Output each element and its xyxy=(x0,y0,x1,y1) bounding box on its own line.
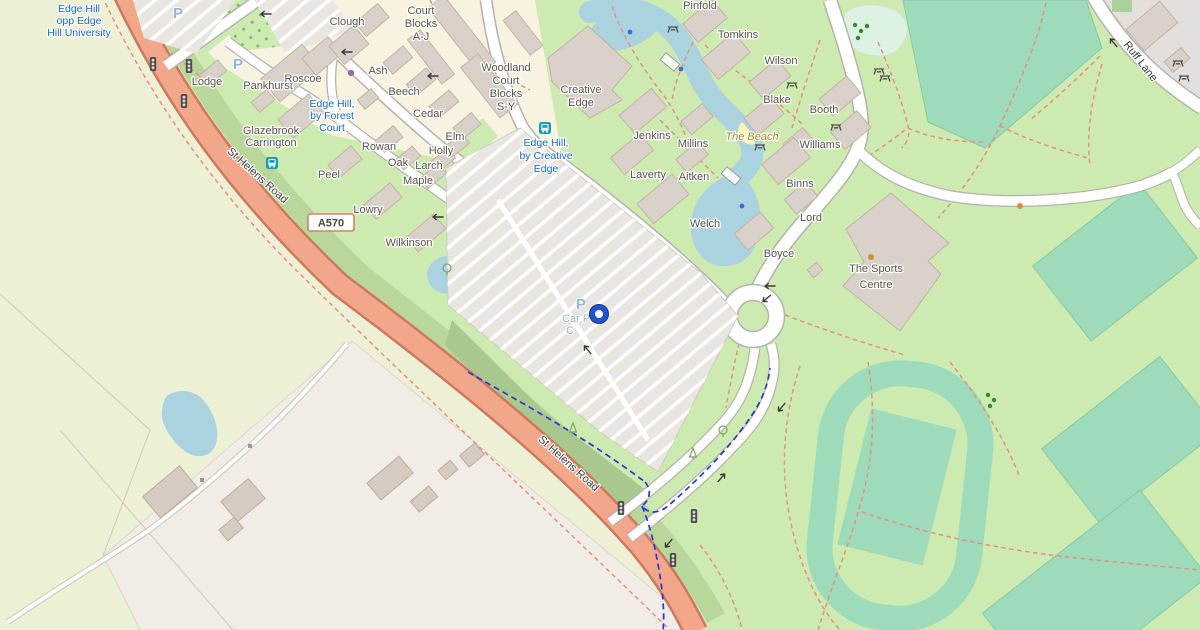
building-label-millins: Millins xyxy=(678,138,709,150)
building-label-wilson: Wilson xyxy=(764,55,797,67)
bus-stop-label-creative-edge: by Creative xyxy=(519,150,572,162)
traffic-light-icon xyxy=(691,509,697,523)
lane-node xyxy=(200,478,204,482)
shop-poi-icon xyxy=(348,70,354,76)
building-label-lowry: Lowry xyxy=(353,204,383,216)
bus-stop-label-forest-court: Edge Hill, xyxy=(310,98,355,110)
building-label-glazebrook: Carrington xyxy=(245,137,296,149)
building-label-ash: Ash xyxy=(369,65,388,77)
building-label-lord: Lord xyxy=(800,212,822,224)
building-label-woodland: S-Y xyxy=(497,101,516,113)
bus-stop-label-forest-court: Court xyxy=(319,122,345,134)
building-label-booth: Booth xyxy=(810,104,839,116)
building-label-peel: Peel xyxy=(318,169,340,181)
bus-stop-label-forest-court: by Forest xyxy=(310,110,354,122)
tree-dot-icon xyxy=(865,24,869,28)
building-label-wilkinson: Wilkinson xyxy=(385,237,432,249)
building-label-beech: Beech xyxy=(388,86,419,98)
parking-icon: P xyxy=(173,5,183,22)
parking-icon: P xyxy=(576,296,586,313)
building-label-holly: Holly xyxy=(429,145,454,157)
building-label-tomkins: Tomkins xyxy=(718,29,759,41)
traffic-light-icon xyxy=(670,553,676,567)
bus-stop-label-creative-edge: Edge Hill, xyxy=(524,137,569,149)
building-label-aitken: Aitken xyxy=(679,171,710,183)
traffic-light-icon xyxy=(181,94,187,108)
building-label-elm: Elm xyxy=(446,131,465,143)
car-park-letter: C xyxy=(566,325,574,337)
traffic-light-icon xyxy=(150,57,156,71)
building-label-pinfold: Pinfold xyxy=(683,0,717,12)
building-label-woodland: Court xyxy=(493,75,520,87)
building-label-cedar: Cedar xyxy=(413,108,443,120)
fountain-dot-icon xyxy=(679,67,684,72)
poi-dot-icon xyxy=(1017,203,1023,209)
building-label-maple: Maple xyxy=(403,175,433,187)
osm-map[interactable]: Edge Hill opp Edge Hill University Cloug… xyxy=(0,0,1200,630)
building-label-larch: Larch xyxy=(415,160,443,172)
building-label-court-blocks: A-J xyxy=(413,31,430,43)
poi-dot-icon xyxy=(868,254,874,260)
bus-stop-icon xyxy=(539,122,551,134)
traffic-light-icon xyxy=(618,501,624,515)
building-label-court-blocks: Blocks xyxy=(405,18,438,30)
building-label-clough: Clough xyxy=(330,16,365,28)
building-label-sports-centre: The Sports xyxy=(849,263,903,275)
building-label-lodge: Lodge xyxy=(192,76,223,88)
building-label-rowan: Rowan xyxy=(362,141,396,153)
building-label-williams: Williams xyxy=(800,139,841,151)
tree-dot-icon xyxy=(986,393,990,397)
building-label-oak: Oak xyxy=(388,157,409,169)
building-label-court-blocks: Court xyxy=(408,5,435,17)
building-label-boyce: Boyce xyxy=(764,248,795,260)
location-marker xyxy=(590,305,609,324)
building-label-sports-centre: Centre xyxy=(859,279,892,291)
fountain-dot-icon xyxy=(628,30,633,35)
tree-dot-icon xyxy=(992,398,996,402)
building-label-welch: Welch xyxy=(690,218,720,230)
building-label-blake: Blake xyxy=(763,94,791,106)
building-label-creative-edge: Edge xyxy=(568,97,594,109)
bus-stop-label-creative-edge: Edge xyxy=(534,163,559,175)
garden-patch xyxy=(1112,0,1132,12)
building-label-roscoe: Roscoe xyxy=(284,73,321,85)
bus-stop-icon xyxy=(266,157,278,169)
fountain-dot-icon xyxy=(740,204,745,209)
a570-badge: A570 xyxy=(308,214,354,231)
tree-dot-icon xyxy=(859,29,863,33)
map-canvas[interactable]: Edge Hill opp Edge Hill University Cloug… xyxy=(0,0,1200,630)
building-label-laverty: Laverty xyxy=(630,169,667,181)
tree-dot-icon xyxy=(856,36,860,40)
a570-badge-text: A570 xyxy=(318,218,344,230)
building-label-binns: Binns xyxy=(786,178,814,190)
bus-stop-label-opp: Hill University xyxy=(47,27,111,39)
building-label-woodland: Blocks xyxy=(490,88,523,100)
traffic-light-icon xyxy=(186,59,192,73)
building-label-jenkins: Jenkins xyxy=(633,130,671,142)
building-label-creative-edge: Creative xyxy=(561,84,602,96)
tree-dot-icon xyxy=(988,404,992,408)
bus-stop-label-opp: opp Edge xyxy=(57,15,102,27)
building-label-woodland: Woodland xyxy=(481,62,530,74)
tree-dot-icon xyxy=(853,23,857,27)
lane-node xyxy=(248,444,252,448)
parking-icon: P xyxy=(233,56,243,73)
building-label-glazebrook: Glazebrook xyxy=(243,125,300,137)
water-label-the-beach: The Beach xyxy=(725,131,778,143)
bus-stop-label-opp: Edge Hill xyxy=(58,3,100,15)
